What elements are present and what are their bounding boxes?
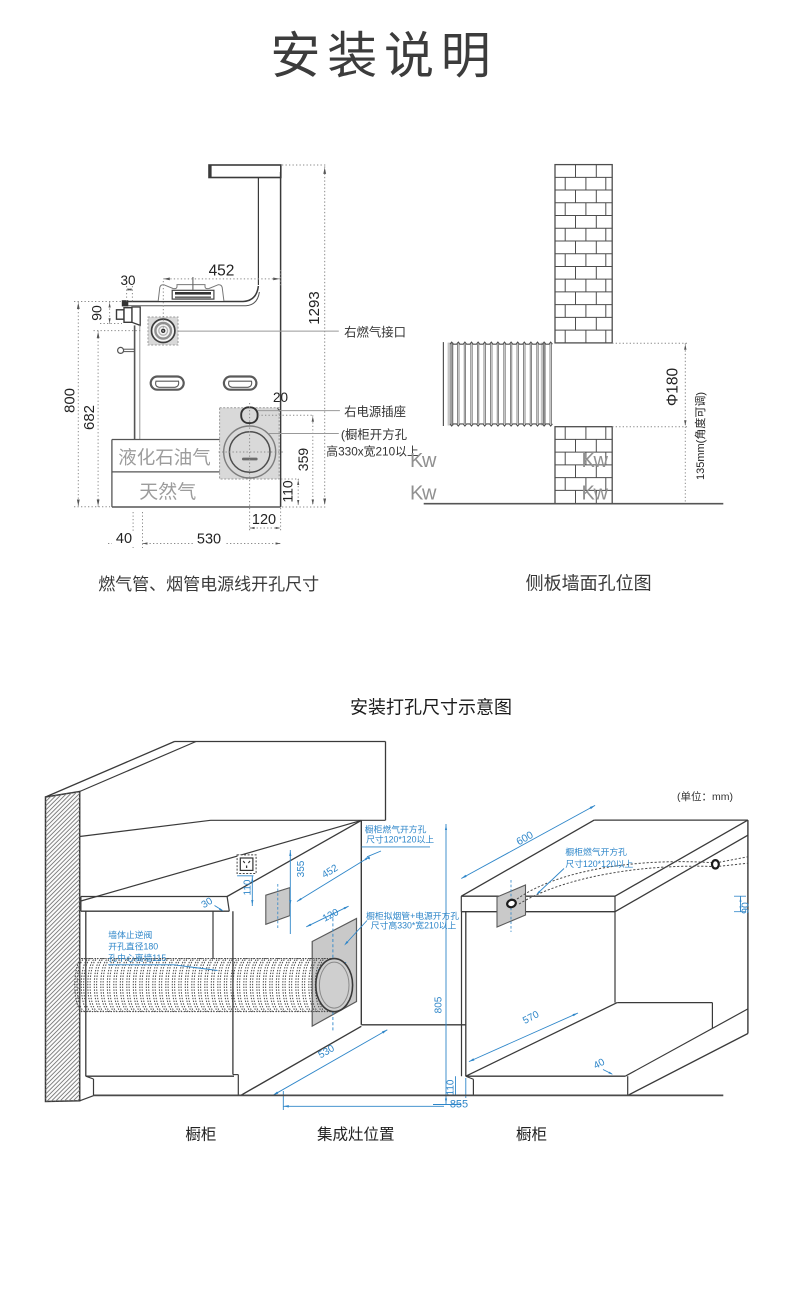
svg-text:Φ180: Φ180 bbox=[665, 368, 682, 407]
svg-text:橱柜拟烟管+电源开方孔: 橱柜拟烟管+电源开方孔 bbox=[366, 910, 459, 921]
svg-text:集成灶位置: 集成灶位置 bbox=[317, 1126, 395, 1144]
svg-text:530: 530 bbox=[317, 1043, 337, 1061]
svg-text:805: 805 bbox=[434, 996, 445, 1013]
svg-text:天然气: 天然气 bbox=[139, 481, 196, 503]
svg-text:安装打孔尺寸示意图: 安装打孔尺寸示意图 bbox=[350, 698, 512, 718]
svg-text:40: 40 bbox=[116, 531, 132, 547]
svg-text:120: 120 bbox=[321, 907, 341, 925]
svg-text:高330x宽210以上: 高330x宽210以上 bbox=[326, 445, 419, 459]
svg-text:359: 359 bbox=[295, 448, 311, 472]
svg-text:355: 355 bbox=[296, 860, 307, 877]
svg-text:90: 90 bbox=[89, 305, 105, 321]
svg-text:110: 110 bbox=[446, 1079, 457, 1095]
svg-text:30: 30 bbox=[120, 273, 135, 288]
svg-text:Kw: Kw bbox=[410, 450, 437, 472]
svg-text:110: 110 bbox=[243, 879, 254, 895]
svg-text:110: 110 bbox=[280, 480, 296, 503]
svg-text:Kw: Kw bbox=[410, 483, 437, 505]
svg-text:安装说明: 安装说明 bbox=[270, 28, 497, 84]
svg-text:开孔直径180: 开孔直径180 bbox=[108, 941, 158, 952]
svg-text:40: 40 bbox=[592, 1057, 607, 1072]
svg-text:530: 530 bbox=[197, 532, 221, 548]
svg-text:600: 600 bbox=[514, 829, 535, 848]
svg-text:1293: 1293 bbox=[306, 291, 323, 324]
svg-text:橱柜燃气开方孔: 橱柜燃气开方孔 bbox=[365, 823, 427, 834]
svg-text:120: 120 bbox=[252, 512, 276, 528]
svg-text:452: 452 bbox=[209, 263, 235, 280]
svg-text:橱柜: 橱柜 bbox=[185, 1126, 216, 1144]
svg-text:20: 20 bbox=[273, 390, 288, 405]
svg-text:90: 90 bbox=[740, 902, 752, 914]
svg-text:Kw: Kw bbox=[582, 450, 609, 472]
svg-text:尺寸高330*宽210以上: 尺寸高330*宽210以上 bbox=[371, 920, 457, 931]
svg-text:墙体止逆阀: 墙体止逆阀 bbox=[108, 929, 152, 940]
svg-text:682: 682 bbox=[81, 405, 98, 430]
svg-text:右燃气接口: 右燃气接口 bbox=[344, 325, 406, 340]
svg-text:橱柜燃气开方孔: 橱柜燃气开方孔 bbox=[565, 846, 627, 857]
svg-text:液化石油气: 液化石油气 bbox=[118, 447, 211, 468]
svg-text:Kw: Kw bbox=[582, 483, 609, 505]
svg-text:570: 570 bbox=[521, 1009, 541, 1027]
svg-text:右电源插座: 右电源插座 bbox=[344, 404, 406, 419]
svg-text:燃气管、烟管电源线开孔尺寸: 燃气管、烟管电源线开孔尺寸 bbox=[98, 575, 319, 594]
svg-text:橱柜: 橱柜 bbox=[516, 1126, 547, 1144]
svg-text:孔中心离墙115: 孔中心离墙115 bbox=[108, 952, 166, 963]
svg-text:侧板墙面孔位图: 侧板墙面孔位图 bbox=[526, 574, 652, 594]
svg-text:452: 452 bbox=[320, 863, 340, 881]
svg-text:800: 800 bbox=[62, 388, 79, 413]
svg-text:尺寸120*120以上: 尺寸120*120以上 bbox=[565, 858, 633, 869]
svg-text:(橱柜开方孔: (橱柜开方孔 bbox=[341, 427, 408, 442]
svg-text:135mm(角度可调): 135mm(角度可调) bbox=[693, 392, 707, 480]
svg-text:尺寸120*120以上: 尺寸120*120以上 bbox=[366, 834, 434, 845]
svg-text:(单位：mm): (单位：mm) bbox=[677, 790, 733, 803]
svg-text:30: 30 bbox=[200, 896, 216, 911]
